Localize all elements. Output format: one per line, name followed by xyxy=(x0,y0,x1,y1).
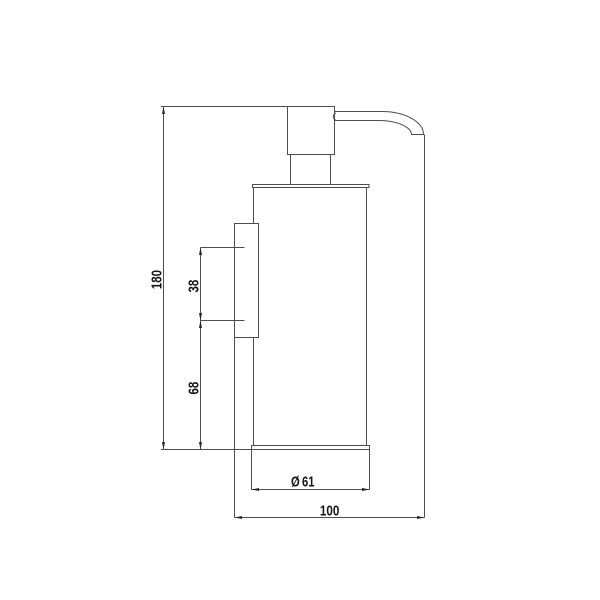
svg-text:180: 180 xyxy=(148,270,165,289)
svg-text:68: 68 xyxy=(185,381,202,394)
svg-text:38: 38 xyxy=(185,279,202,292)
svg-text:100: 100 xyxy=(320,502,340,519)
svg-text:Ø 61: Ø 61 xyxy=(291,473,315,490)
